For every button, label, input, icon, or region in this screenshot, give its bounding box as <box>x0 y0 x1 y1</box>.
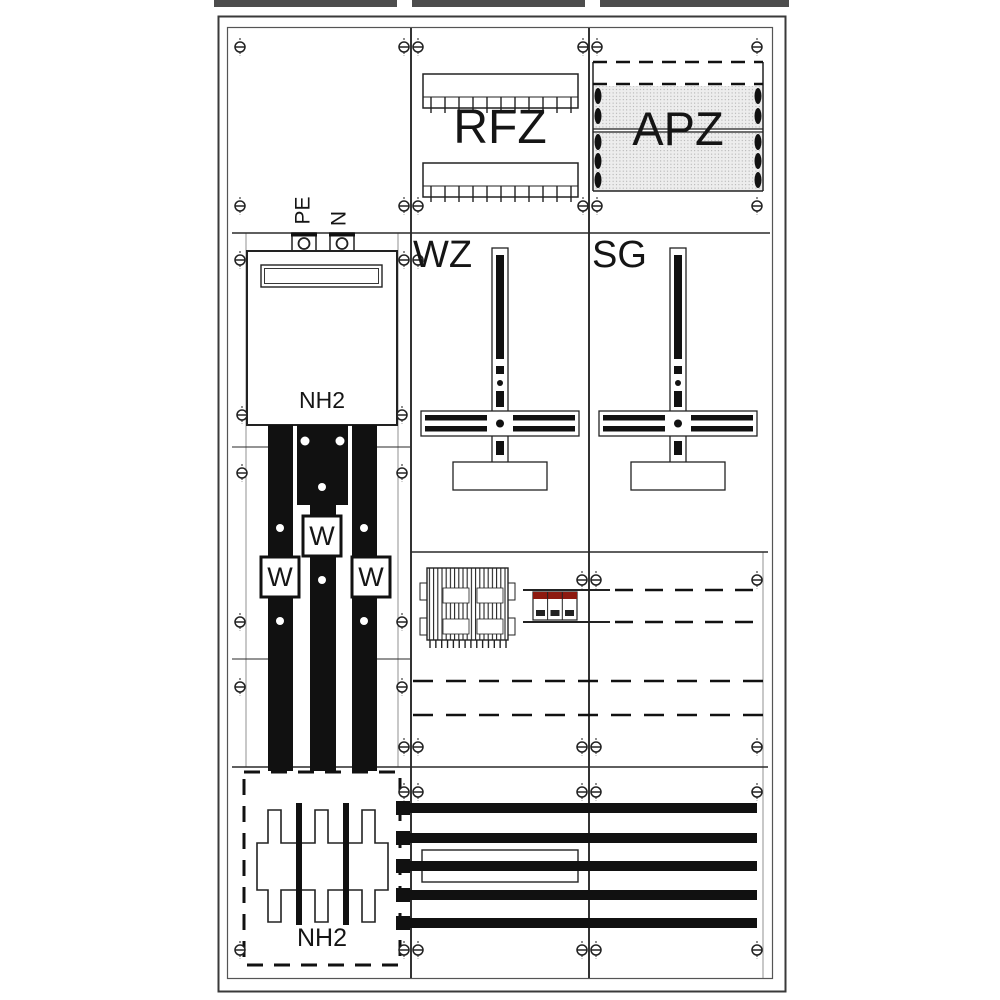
cabinet-top-band <box>214 0 789 7</box>
sg-label: SG <box>592 236 647 274</box>
apz-label: APZ <box>596 105 760 152</box>
n-label: N <box>329 208 350 230</box>
circuit-breaker <box>523 590 757 622</box>
cabinet-drawing: { "figure": { "type": "electrical-distri… <box>0 0 1000 1000</box>
bottom-busbars <box>396 801 757 930</box>
wz-label: WZ <box>413 236 472 274</box>
nh2-top-label: NH2 <box>247 389 397 412</box>
terminal-block <box>420 568 515 640</box>
nh-fuse-base-outline <box>257 810 388 922</box>
vertical-busbars <box>261 425 390 771</box>
rfz-label: RFZ <box>420 104 580 152</box>
ct-label-1: W <box>303 523 341 550</box>
nh2-bottom-label: NH2 <box>244 926 400 951</box>
ct-label-2: W <box>261 564 299 591</box>
meter-cross-sg <box>599 248 757 490</box>
pe-label: PE <box>293 189 314 233</box>
ct-label-3: W <box>352 564 390 591</box>
meter-cross-wz <box>421 248 579 490</box>
